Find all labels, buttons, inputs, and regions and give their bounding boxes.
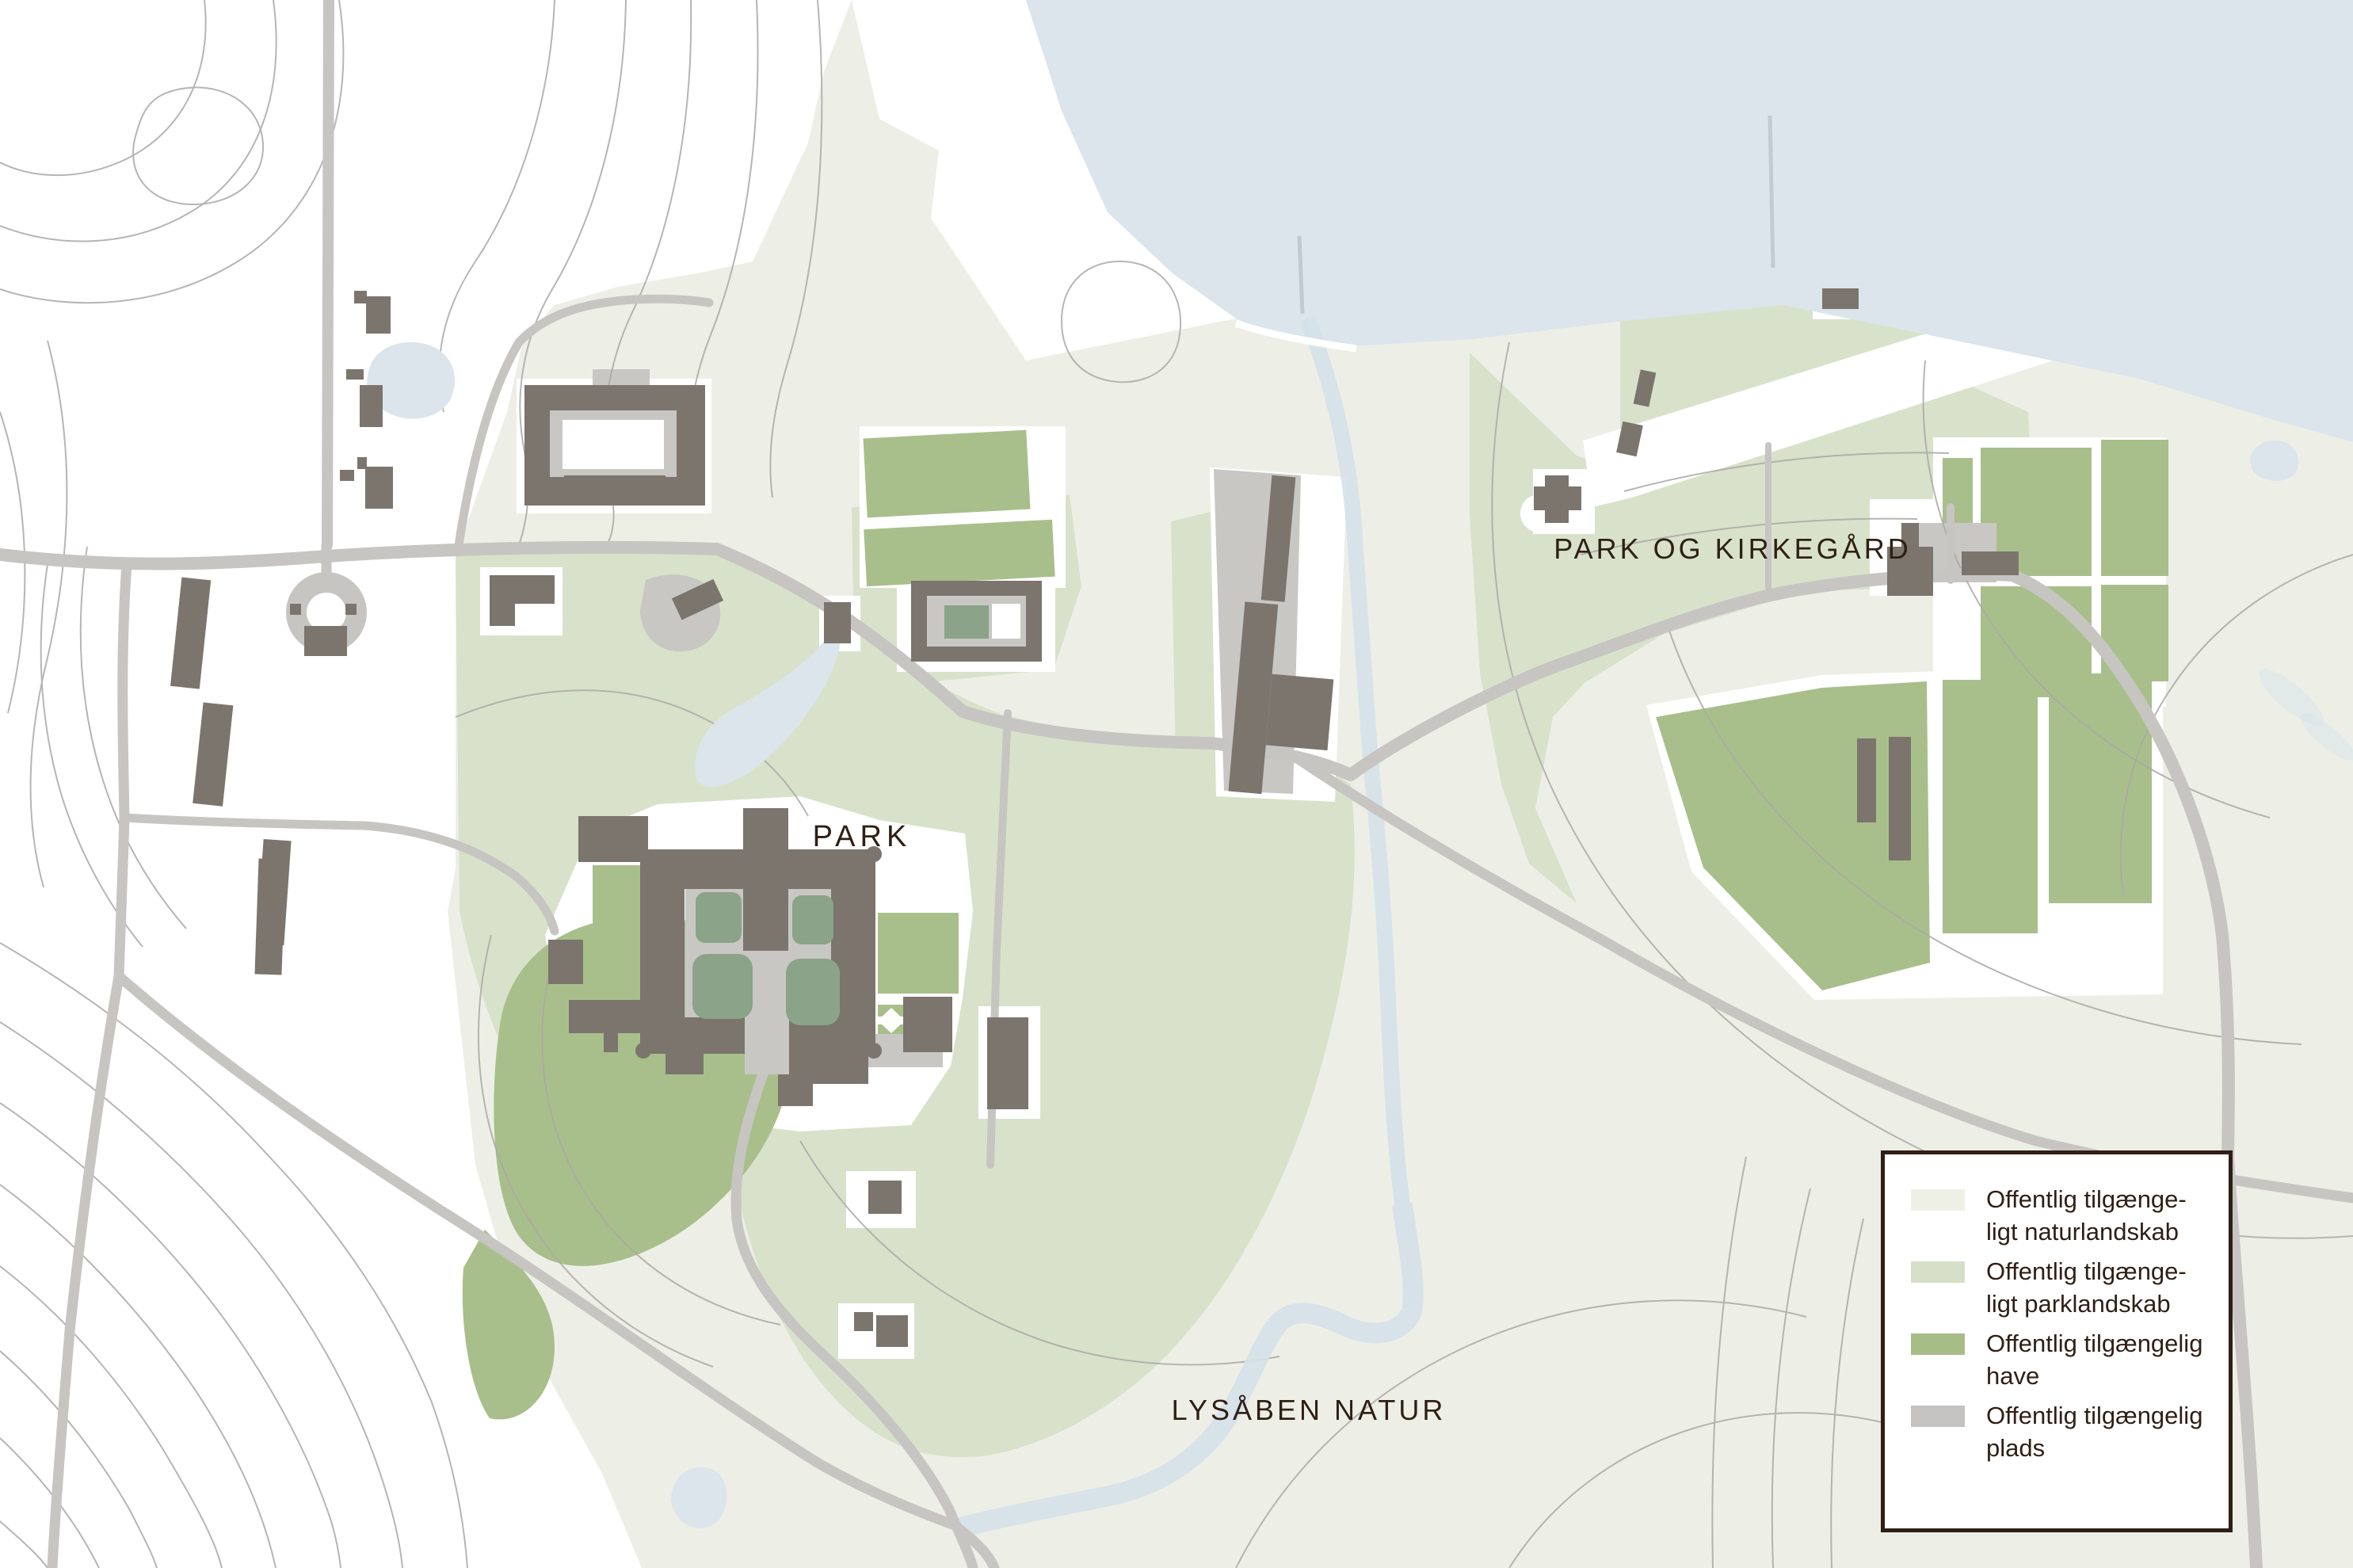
legend-label-line: have — [1986, 1360, 2202, 1392]
tall-building-east-block — [1266, 674, 1334, 750]
legend-swatch-have — [1911, 1333, 1965, 1355]
legend-item-plads: Offentlig tilgængelig plads — [1911, 1399, 2214, 1464]
legend: Offentlig tilgænge- ligt naturlandskab O… — [1881, 1150, 2233, 1532]
house-4 — [360, 385, 383, 427]
cemetery-slab-1 — [1857, 738, 1876, 822]
courtyard-garden-nw — [696, 892, 742, 943]
pond-kirkegaard-east — [2250, 441, 2298, 481]
castle-garden-west-1 — [593, 865, 640, 941]
cemetery-plot-n2 — [2101, 440, 2168, 576]
cemetery-plot-s2 — [1943, 680, 2038, 933]
castle-southwest-bar — [569, 1000, 643, 1033]
cemetery-building-2 — [1962, 551, 2019, 575]
castle-garden-east-1 — [878, 913, 959, 994]
house-2 — [366, 296, 391, 334]
label-lysaaben-natur: LYSÅBEN NATUR — [1172, 1394, 1447, 1426]
label-park-og-kirkegaard: PARK OG KIRKEGÅRD — [1554, 532, 1911, 565]
legend-swatch-plads — [1911, 1406, 1965, 1427]
u-building-entry-strip — [593, 369, 650, 387]
castle-east-long-building — [987, 1017, 1028, 1109]
u-building-court-white — [563, 420, 664, 469]
castle-gate-passage — [745, 1017, 789, 1074]
legend-label-line: Offentlig tilgænge- — [1986, 1183, 2187, 1215]
castle-southwest-stub — [604, 1030, 618, 1052]
site-map: PARK PARK OG KIRKEGÅRD LYSÅBEN NATUR Off… — [0, 0, 2353, 1568]
castle-center-wing — [743, 808, 788, 951]
legend-item-parklandskab: Offentlig tilgænge- ligt parklandskab — [1911, 1255, 2214, 1320]
legend-label-line: Offentlig tilgængelig — [1986, 1399, 2202, 1432]
cemetery-slab-2 — [1889, 737, 1911, 860]
roundabout-building — [304, 626, 347, 656]
north-garden-plot-1 — [864, 430, 1031, 518]
courtyard-garden-ne — [792, 895, 833, 944]
house-6 — [340, 470, 354, 481]
slab-building-west — [254, 858, 285, 975]
north-building-court-white — [992, 604, 1020, 639]
legend-swatch-parklandskab — [1911, 1261, 1965, 1283]
north-building-court-garden — [944, 605, 989, 639]
courtyard-garden-sw — [692, 954, 753, 1019]
legend-item-have: Offentlig tilgængelig have — [1911, 1327, 2214, 1392]
farm-building-1 — [868, 1181, 902, 1214]
legend-label-line: ligt parklandskab — [1986, 1288, 2187, 1320]
house-3 — [346, 369, 364, 380]
castle-tower-se — [866, 1043, 882, 1059]
farm-building-2 — [854, 1312, 873, 1331]
road-north-vertical — [327, 0, 329, 545]
castle-east-block — [903, 997, 952, 1052]
house-1 — [354, 291, 367, 303]
legend-label-line: Offentlig tilgængelig — [1986, 1327, 2202, 1360]
label-park: PARK — [813, 820, 912, 853]
roundabout-kiosk-east — [345, 604, 357, 615]
roundabout-kiosk-west — [290, 604, 301, 615]
north-garden-plot-2 — [864, 520, 1054, 586]
legend-swatch-naturlandskab — [1911, 1189, 1965, 1211]
castle-west-annex — [548, 940, 583, 984]
castle-tower-sw — [635, 1043, 651, 1059]
castle-northwest-annex — [578, 816, 648, 862]
legend-label-line: Offentlig tilgænge- — [1986, 1255, 2187, 1288]
roundabout-island — [311, 597, 342, 628]
legend-label-line: plads — [1986, 1432, 2202, 1464]
legend-label-line: ligt naturlandskab — [1986, 1215, 2187, 1248]
castle-south-gate — [665, 1022, 704, 1074]
legend-item-naturlandskab: Offentlig tilgænge- ligt naturlandskab — [1911, 1183, 2214, 1248]
shore-building — [1822, 288, 1859, 309]
courtyard-garden-se — [786, 959, 840, 1025]
u-building-inner-bar — [564, 475, 665, 504]
farm-building-3 — [876, 1315, 908, 1347]
house-7 — [365, 467, 393, 509]
small-slab-west-of-north-building — [824, 602, 851, 643]
